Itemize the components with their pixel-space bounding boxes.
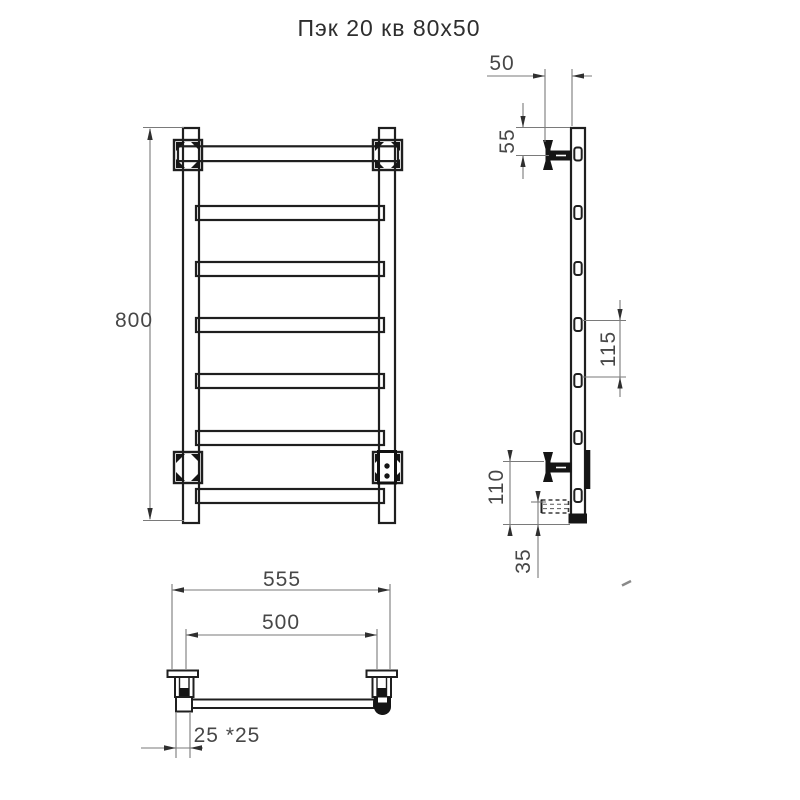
- rung-slot: [574, 148, 581, 161]
- rung-slot: [574, 318, 581, 331]
- rung: [196, 431, 384, 445]
- rung-slot: [574, 489, 581, 502]
- dimension-55-label: 55: [496, 128, 519, 153]
- rung: [196, 262, 384, 276]
- rung: [196, 374, 384, 388]
- drawing-title: Пэк 20 кв 80х50: [297, 15, 480, 41]
- bottom-bar: [192, 700, 374, 709]
- rung-slot: [574, 206, 581, 219]
- side-element-housing: [585, 450, 591, 489]
- side-post-bottom-cap: [569, 514, 588, 524]
- rung-slot: [574, 431, 581, 444]
- technical-drawing-page: Пэк 20 кв 80х50: [0, 0, 800, 800]
- dimension-25-label: 25 *25: [194, 724, 261, 747]
- rung: [196, 489, 384, 503]
- dimension-555-label: 555: [263, 568, 301, 591]
- print-artifact: [622, 581, 631, 586]
- terminal-dot: [384, 463, 389, 468]
- bottom-view: [168, 671, 398, 716]
- dimension-800-label: 800: [115, 309, 153, 332]
- side-bracket-bottom: [543, 452, 572, 482]
- dimension-35-label: 35: [512, 548, 535, 573]
- terminal-dot: [384, 473, 389, 478]
- rung: [196, 206, 384, 220]
- technical-drawing: Пэк 20 кв 80х50: [0, 0, 800, 800]
- dimension-500-label: 500: [262, 611, 300, 634]
- dimension-50-label: 50: [489, 52, 514, 75]
- front-top-bar: [178, 146, 398, 161]
- front-electric-box: [379, 452, 396, 484]
- rung-slot: [574, 374, 581, 387]
- dimension-115: 115: [582, 300, 626, 397]
- dimension-115-label: 115: [597, 331, 620, 367]
- front-view: [174, 128, 402, 523]
- dimension-55: 55: [496, 103, 570, 179]
- rung-slot: [574, 262, 581, 275]
- rung: [196, 318, 384, 332]
- dimension-110-label: 110: [485, 469, 508, 505]
- dimension-500: 500: [186, 611, 377, 669]
- dimension-25: 25 *25: [141, 713, 260, 758]
- post-section: [176, 697, 192, 712]
- side-view: [542, 128, 591, 524]
